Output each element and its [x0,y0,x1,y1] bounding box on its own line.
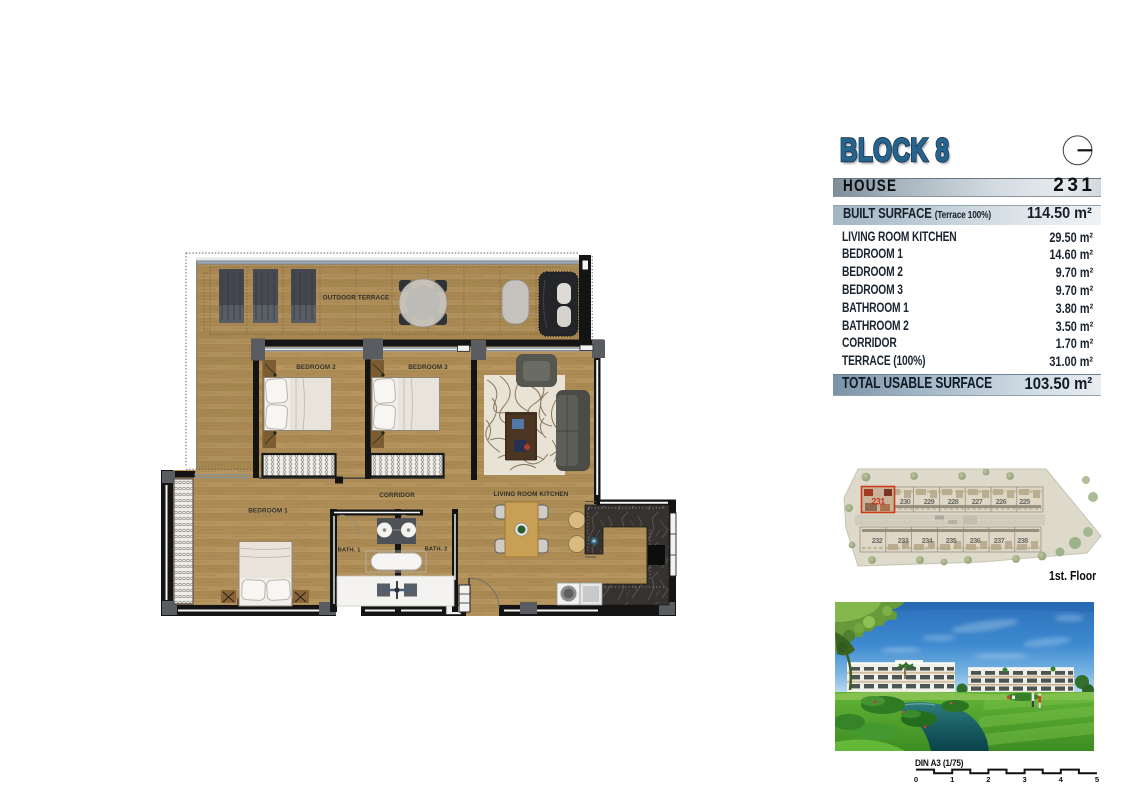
svg-text:2: 2 [986,775,990,784]
svg-text:5: 5 [1095,775,1100,784]
svg-text:OUTDOOR TERRACE: OUTDOOR TERRACE [323,295,390,302]
svg-text:234: 234 [922,536,933,545]
svg-text:0: 0 [914,775,918,784]
svg-text:228: 228 [948,497,959,506]
svg-text:229: 229 [924,497,935,506]
svg-text:226: 226 [996,497,1007,506]
svg-text:235: 235 [946,536,957,545]
svg-text:BEDROOM 3: BEDROOM 3 [408,364,448,371]
svg-text:238: 238 [1017,536,1028,545]
svg-text:1: 1 [950,775,955,784]
svg-text:CORRIDOR: CORRIDOR [379,492,415,499]
svg-text:LIVING ROOM KITCHEN: LIVING ROOM KITCHEN [493,491,568,498]
svg-text:236: 236 [970,536,981,545]
svg-text:BEDROOM 2: BEDROOM 2 [296,364,336,371]
svg-text:BEDROOM 1: BEDROOM 1 [248,508,288,515]
svg-text:227: 227 [972,497,983,506]
svg-text:BATH. 1: BATH. 1 [338,548,361,554]
svg-text:233: 233 [898,536,909,545]
svg-text:3: 3 [1022,775,1026,784]
svg-text:232: 232 [872,536,883,545]
svg-text:237: 237 [994,536,1005,545]
svg-text:BATH. 2: BATH. 2 [425,547,448,553]
svg-text:230: 230 [900,497,911,506]
svg-text:231: 231 [871,497,885,507]
svg-text:225: 225 [1019,497,1030,506]
svg-text:4: 4 [1059,775,1064,784]
